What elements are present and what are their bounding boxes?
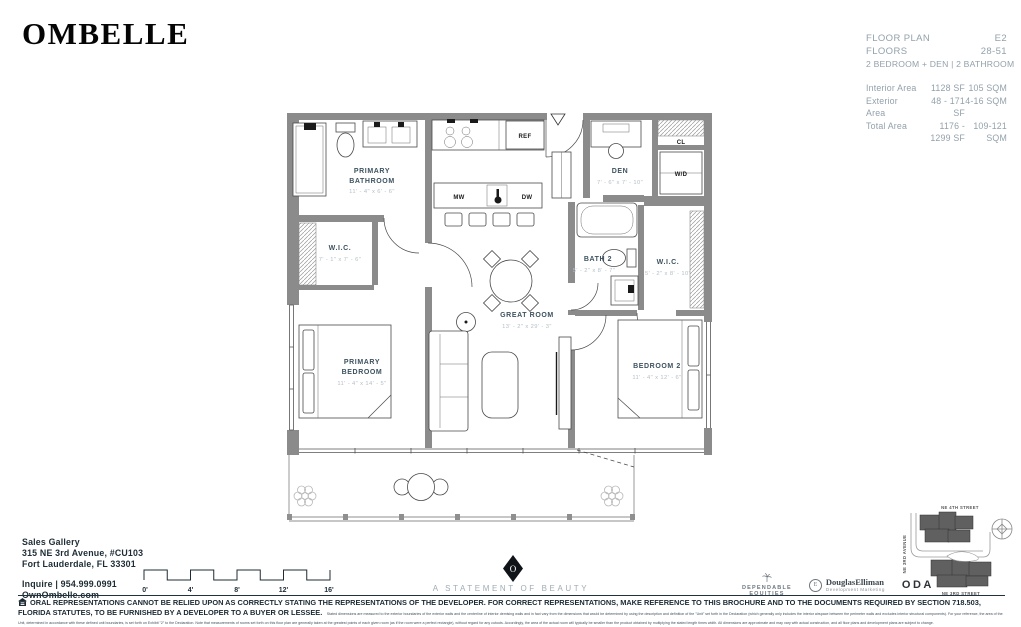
sofa-icon	[429, 331, 468, 431]
scale-tick-12: 12'	[279, 587, 289, 594]
street-top-label: NE 4TH STREET	[941, 505, 979, 510]
bedroom2-dims: 11' - 4" x 12' - 6"	[632, 375, 681, 381]
primary-bedroom-dims: 11' - 4" x 14' - 5"	[337, 381, 386, 387]
key-plan-map: NE 4TH STREET NE 3RD AVENUE NE 3RD STREE…	[903, 502, 1017, 603]
den-label: DEN	[612, 168, 629, 175]
balcony	[287, 450, 635, 521]
bedroom2-label: BEDROOM 2	[633, 363, 681, 370]
brand-medallion-icon: O	[496, 555, 530, 587]
dining-chairs	[445, 213, 534, 226]
floors-label: FLOORS	[866, 45, 907, 58]
dependable-equities-logo: DEPENDABLE EQUITIES	[742, 573, 792, 598]
refrigerator-label: REF	[519, 134, 532, 140]
primary-bathroom-dims: 11' - 4" x 6' - 6"	[349, 189, 395, 195]
scale-tick-0: 0'	[142, 587, 148, 594]
contact-block: Sales Gallery 315 NE 3rd Avenue, #CU103 …	[22, 537, 143, 601]
address-line2: Fort Lauderdale, FL 33301	[22, 559, 143, 570]
bath2-label: BATH 2	[584, 256, 612, 263]
douglas-elliman-logo: E DouglasElliman Development Marketing	[809, 578, 885, 593]
entry-door	[546, 114, 583, 198]
exterior-area-sqm: 4-16 SQM	[965, 95, 1007, 120]
wic2-label: W.I.C.	[657, 259, 680, 266]
address-line1: 315 NE 3rd Avenue, #CU103	[22, 548, 143, 559]
scale-tick-4: 4'	[188, 587, 194, 594]
great-room-dims: 13' - 2" x 29' - 3"	[502, 324, 552, 330]
interior-area-sqm: 105 SQM	[965, 82, 1007, 95]
floor-plan-row: FLOOR PLAN E2	[866, 32, 1007, 45]
bath2-dims: 5' - 2" x 8' - 7"	[573, 268, 615, 274]
plant-icon	[601, 486, 623, 506]
floor-plan-drawing: PRIMARY BATHROOM 11' - 4" x 6' - 6" W.I.…	[280, 105, 720, 535]
floors-value: 28-51	[981, 45, 1007, 58]
exterior-area-label: Exterior Area	[866, 95, 918, 120]
exterior-area-row: Exterior Area 48 - 171 SF 4-16 SQM	[866, 95, 1007, 120]
service-closets	[658, 120, 704, 194]
svg-text:BATHROOM: BATHROOM	[349, 178, 395, 185]
plant-icon	[294, 486, 316, 506]
inquire-phone: Inquire | 954.999.0991	[22, 579, 143, 590]
scale-tick-16: 16'	[324, 587, 334, 594]
total-area-row: Total Area 1176 - 1299 SF 109-121 SQM	[866, 120, 1007, 145]
floors-row: FLOORS 28-51	[866, 45, 1007, 58]
palm-icon	[762, 573, 772, 582]
primary-wic-dims: 7' - 1" x 7' - 6"	[319, 257, 361, 263]
elliman-circle-icon: E	[809, 579, 822, 592]
round-table-icon	[490, 260, 532, 302]
total-area-sqm: 109-121 SQM	[965, 120, 1007, 145]
microwave-label: MW	[453, 195, 464, 201]
interior-area-sf: 1128 SF	[918, 82, 965, 95]
compass-icon	[992, 519, 1012, 539]
building-north	[920, 512, 973, 542]
dishwasher-label: DW	[522, 195, 533, 201]
legal-disclaimer: ORAL REPRESENTATIONS CANNOT BE RELIED UP…	[18, 595, 1005, 626]
exterior-area-sf: 48 - 171 SF	[918, 95, 965, 120]
entry-marker-icon	[551, 114, 565, 125]
outdoor-table-icon	[394, 474, 448, 501]
den-dims: 7' - 6" x 7' - 10"	[597, 180, 643, 186]
floor-plan-value: E2	[995, 32, 1007, 45]
wic2-dims: 5' - 2" x 8' - 10"	[645, 271, 691, 277]
tagline: A STATEMENT OF BEAUTY	[400, 584, 622, 593]
equal-housing-icon	[18, 598, 27, 606]
unit-type: 2 BEDROOM + DEN | 2 BATHROOM	[866, 58, 1007, 71]
interior-area-label: Interior Area	[866, 82, 918, 95]
closet-label: CL	[677, 140, 686, 146]
street-left-label: NE 3RD AVENUE	[903, 535, 907, 574]
total-area-sf: 1176 - 1299 SF	[918, 120, 965, 145]
media-console-icon	[559, 337, 571, 429]
svg-text:O: O	[510, 564, 517, 574]
interior-area-row: Interior Area 1128 SF 105 SQM	[866, 82, 1007, 95]
total-area-label: Total Area	[866, 120, 918, 145]
primary-wic-closet	[299, 223, 472, 287]
primary-bedroom-label: PRIMARY	[344, 359, 380, 366]
plan-info-panel: FLOOR PLAN E2 FLOORS 28-51 2 BEDROOM + D…	[866, 32, 1007, 145]
entry-closet	[658, 120, 704, 136]
primary-bathroom-label: PRIMARY	[354, 168, 390, 175]
coffee-table-icon	[482, 352, 518, 418]
great-room-furniture	[429, 251, 571, 431]
great-room-label: GREAT ROOM	[500, 312, 554, 319]
brand-logo: OMBELLE	[22, 16, 189, 52]
svg-text:BEDROOM: BEDROOM	[342, 369, 383, 376]
washer-dryer-label: W/D	[675, 172, 688, 178]
floor-plan-label: FLOOR PLAN	[866, 32, 930, 45]
primary-wic-label: W.I.C.	[329, 245, 352, 252]
den-desk-icon	[591, 121, 641, 159]
sales-gallery-title: Sales Gallery	[22, 537, 143, 548]
scale-tick-8: 8'	[234, 587, 240, 594]
